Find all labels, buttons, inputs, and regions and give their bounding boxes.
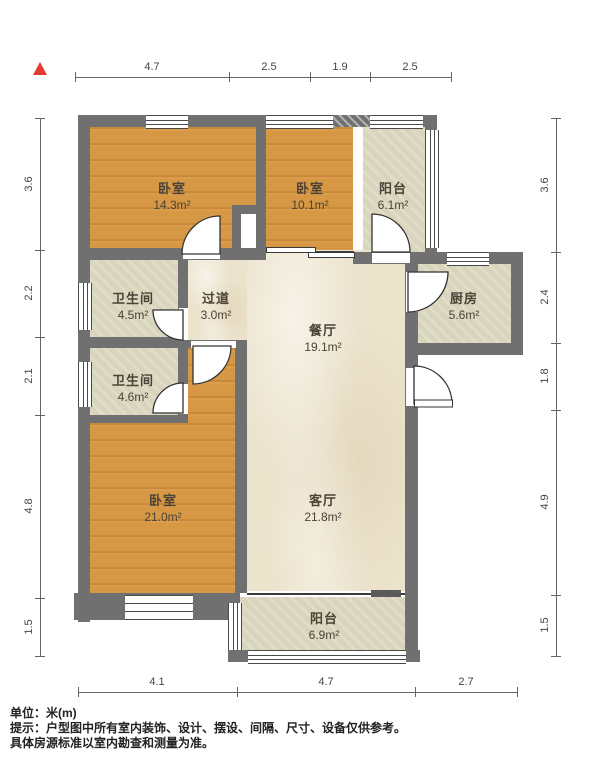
tick bbox=[75, 72, 76, 82]
room-label-bathroom-upper: 卫生间 4.5m² bbox=[112, 288, 154, 322]
dim-label: 4.1 bbox=[149, 676, 164, 688]
door-bathroom-upper bbox=[153, 310, 184, 341]
dim-label: 2.4 bbox=[539, 289, 551, 304]
room-label-living-room: 客厅 21.8m² bbox=[304, 490, 341, 524]
door-bedroom-top-left bbox=[182, 216, 222, 256]
window bbox=[447, 252, 489, 266]
tick bbox=[35, 415, 45, 416]
wall bbox=[235, 340, 247, 593]
door-bathroom-lower bbox=[153, 383, 184, 414]
tick bbox=[415, 687, 416, 697]
door-gap bbox=[372, 253, 410, 263]
window bbox=[228, 603, 242, 650]
dim-label: 2.5 bbox=[261, 61, 276, 73]
window bbox=[78, 283, 92, 330]
tick bbox=[310, 72, 311, 82]
dim-label: 4.7 bbox=[318, 676, 333, 688]
room-label-hallway: 过道 3.0m² bbox=[201, 288, 232, 322]
tick bbox=[35, 337, 45, 338]
wall bbox=[256, 115, 266, 250]
door-balcony-top bbox=[372, 214, 412, 254]
room-label-balcony-bottom: 阳台 6.9m² bbox=[309, 608, 340, 642]
tick bbox=[229, 72, 230, 82]
dim-label: 1.9 bbox=[332, 61, 347, 73]
dim-label: 1.5 bbox=[23, 619, 35, 634]
tick bbox=[551, 343, 561, 344]
tick bbox=[551, 118, 561, 119]
dimension-line-right bbox=[556, 118, 557, 656]
floorplan-canvas: 4.7 2.5 1.9 2.5 3.6 2.2 2.1 4.8 1.5 3.6 … bbox=[0, 0, 600, 776]
tick bbox=[551, 410, 561, 411]
window bbox=[266, 115, 333, 129]
dim-label: 4.9 bbox=[539, 494, 551, 509]
sliding-door bbox=[266, 247, 354, 257]
wall bbox=[78, 415, 188, 423]
tick bbox=[551, 252, 561, 253]
window bbox=[146, 115, 188, 129]
sliding-door bbox=[247, 589, 405, 598]
dim-label: 4.7 bbox=[144, 61, 159, 73]
room-label-balcony-top: 阳台 6.1m² bbox=[378, 178, 409, 212]
dim-label: 1.5 bbox=[539, 617, 551, 632]
tick bbox=[35, 656, 45, 657]
room-label-bedroom-bottom: 卧室 21.0m² bbox=[144, 490, 181, 524]
dimension-line-bottom bbox=[78, 692, 517, 693]
tick bbox=[35, 598, 45, 599]
tick bbox=[370, 72, 371, 82]
tip-note-line1: 提示：户型图中所有室内装饰、设计、摆设、间隔、尺寸、设备仅供参考。 bbox=[10, 721, 406, 736]
room-label-bedroom-top-mid: 卧室 10.1m² bbox=[291, 178, 328, 212]
door-bedroom-bottom bbox=[193, 346, 232, 385]
wall-hatched bbox=[333, 115, 370, 127]
window bbox=[370, 115, 423, 129]
window bbox=[78, 362, 92, 407]
wall bbox=[405, 343, 523, 355]
dim-label: 2.5 bbox=[402, 61, 417, 73]
tip-note-line2: 具体房源标准以室内勘查和测量为准。 bbox=[10, 736, 406, 751]
window bbox=[425, 130, 439, 248]
room-label-bathroom-lower: 卫生间 4.6m² bbox=[112, 370, 154, 404]
wall bbox=[78, 248, 266, 260]
wall bbox=[511, 252, 523, 355]
tick bbox=[451, 72, 452, 82]
room-label-kitchen: 厨房 5.6m² bbox=[449, 288, 480, 322]
dim-label: 4.8 bbox=[23, 498, 35, 513]
tick bbox=[551, 656, 561, 657]
dim-label: 3.6 bbox=[539, 177, 551, 192]
window bbox=[248, 650, 406, 664]
tick bbox=[551, 595, 561, 596]
tick bbox=[78, 687, 79, 697]
tick bbox=[35, 118, 45, 119]
window bbox=[125, 595, 193, 620]
dim-label: 2.2 bbox=[23, 285, 35, 300]
footer-notes: 单位：米(m) 提示：户型图中所有室内装饰、设计、摆设、间隔、尺寸、设备仅供参考… bbox=[10, 706, 406, 751]
tick bbox=[237, 687, 238, 697]
unit-note: 单位：米(m) bbox=[10, 706, 406, 721]
north-arrow-icon bbox=[33, 62, 47, 75]
room-dining-living bbox=[247, 250, 405, 591]
dimension-line-top bbox=[75, 77, 451, 78]
dim-label: 2.7 bbox=[458, 676, 473, 688]
tick bbox=[517, 687, 518, 697]
wall bbox=[232, 205, 241, 250]
dim-label: 3.6 bbox=[23, 176, 35, 191]
room-label-dining-room: 餐厅 19.1m² bbox=[304, 320, 341, 354]
dimension-line-left bbox=[40, 118, 41, 656]
wall bbox=[405, 264, 418, 660]
dim-label: 1.8 bbox=[539, 368, 551, 383]
duct bbox=[241, 214, 256, 248]
door-entrance bbox=[414, 366, 454, 409]
room-label-bedroom-top-left: 卧室 14.3m² bbox=[153, 178, 190, 212]
dim-label: 2.1 bbox=[23, 368, 35, 383]
tick bbox=[35, 250, 45, 251]
door-kitchen bbox=[408, 272, 449, 313]
